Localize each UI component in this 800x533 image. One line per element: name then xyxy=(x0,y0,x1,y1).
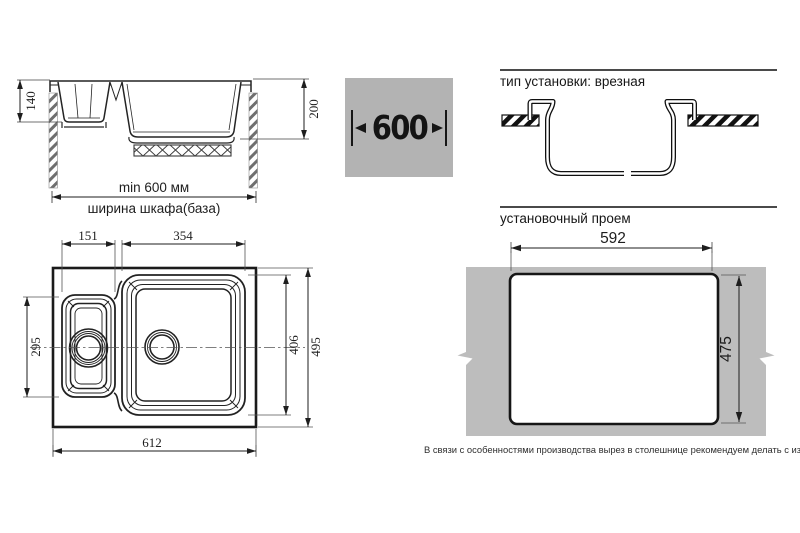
right-arrow-icon xyxy=(432,123,443,133)
dim-label-small-depth: 140 xyxy=(23,91,38,111)
sink-side-profile xyxy=(50,81,251,156)
left-arrow-icon xyxy=(355,123,366,133)
dim-label-small-length: 295 xyxy=(28,337,43,357)
top-view-drawing: 151 354 295 406 495 612 xyxy=(15,226,333,462)
dim-label-small-width: 151 xyxy=(78,228,98,243)
dim-354 xyxy=(122,240,245,271)
min-width-label: min 600 мм xyxy=(119,180,189,195)
install-opening-title: установочный проем xyxy=(500,211,631,226)
cutout-rect xyxy=(510,274,718,424)
badge-value: 600 xyxy=(371,108,426,147)
install-type-title: тип установки: врезная xyxy=(500,74,645,89)
dim-end-bar-right xyxy=(445,110,447,146)
dim-end-bar-left xyxy=(351,110,353,146)
dim-label-overall-width: 612 xyxy=(142,435,162,450)
dim-label-cutout-width: 592 xyxy=(600,230,626,247)
countertop-edge-left xyxy=(502,115,539,126)
cabinet-width-badge: 600 xyxy=(345,78,453,177)
dim-label-overall-length: 495 xyxy=(308,337,323,357)
cabinet-base-label: ширина шкафа(база) xyxy=(88,201,221,216)
cabinet-wall-right xyxy=(249,93,258,188)
drawing-sheet: 140 200 min 600 мм ширина шкафа(база) 60… xyxy=(0,0,800,533)
side-view-drawing: 140 200 min 600 мм ширина шкафа(база) xyxy=(8,68,338,220)
sink-rim-profile xyxy=(530,102,695,174)
cabinet-wall-left xyxy=(49,93,58,188)
install-opening-drawing: 592 475 xyxy=(450,228,795,440)
countertop-edge-right xyxy=(688,115,758,126)
cross-section-drawing xyxy=(495,95,795,195)
dim-label-large-width: 354 xyxy=(173,228,193,243)
dim-label-cutout-height: 475 xyxy=(718,336,735,362)
production-note: В связи с особенностями производства выр… xyxy=(424,444,800,455)
section-divider-bottom xyxy=(500,206,777,208)
dim-label-large-length: 406 xyxy=(286,335,301,355)
section-divider-top xyxy=(500,69,777,71)
dim-label-large-depth: 200 xyxy=(306,99,321,119)
